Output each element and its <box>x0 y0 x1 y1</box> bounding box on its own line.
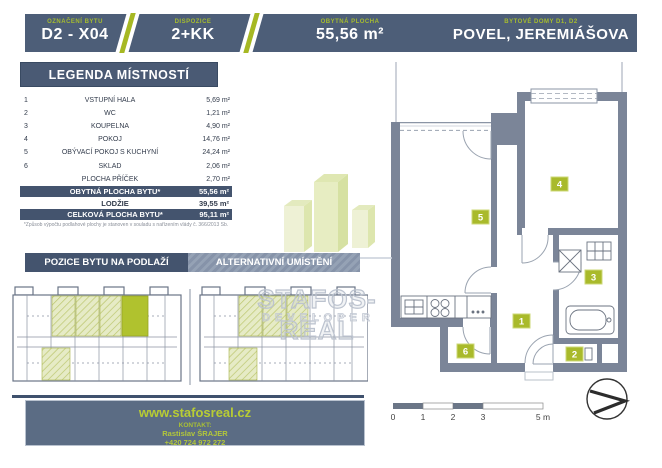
legend-title: LEGENDA MÍSTNOSTÍ <box>20 62 218 87</box>
summary-name: LODŽIE <box>20 199 180 208</box>
room-name: KOUPELNA <box>36 123 184 130</box>
header-cell-unit-id: OZNAČENÍ BYTU D2 - X04 <box>25 14 125 52</box>
summary-row-living-area: OBYTNÁ PLOCHA BYTU* 55,56 m² <box>20 186 232 197</box>
room-name: WC <box>36 110 184 117</box>
room-number: 5 <box>20 149 36 156</box>
svg-text:3: 3 <box>591 273 596 284</box>
header-cell-disposition: DISPOZICE 2+KK <box>138 14 248 52</box>
floor-position-miniplan <box>12 281 368 393</box>
room-area: 24,24 m² <box>184 149 232 156</box>
washing-machine-icon <box>559 250 581 272</box>
room-name: PLOCHA PŘÍČEK <box>36 176 184 183</box>
legend-table: 1 VSTUPNÍ HALA 5,69 m² 2 WC 1,21 m² 3 KO… <box>20 94 232 186</box>
room-area: 5,69 m² <box>184 97 232 104</box>
svg-text:3: 3 <box>481 412 486 422</box>
room-number: 2 <box>20 110 36 117</box>
bathtub-icon <box>566 306 614 334</box>
legend-row: PLOCHA PŘÍČEK 2,70 m² <box>20 173 232 186</box>
room-number: 6 <box>20 163 36 170</box>
svg-text:2: 2 <box>451 412 456 422</box>
svg-text:6: 6 <box>463 347 468 358</box>
summary-area: 55,56 m² <box>180 187 232 196</box>
room-area: 14,76 m² <box>184 136 232 143</box>
room-area: 2,70 m² <box>184 176 232 183</box>
svg-text:1: 1 <box>421 412 426 422</box>
svg-text:5 m: 5 m <box>536 412 550 422</box>
legend-summary: OBYTNÁ PLOCHA BYTU* 55,56 m² LODŽIE 39,5… <box>20 186 232 220</box>
summary-name: CELKOVÁ PLOCHA BYTU* <box>20 210 180 219</box>
legend-row: 4 POKOJ 14,76 m² <box>20 133 232 146</box>
legend-row: 5 OBÝVACÍ POKOJ S KUCHYNÍ 24,24 m² <box>20 146 232 159</box>
tab-alternative-location[interactable]: ALTERNATIVNÍ UMÍSTĚNÍ <box>188 253 360 272</box>
disposition-value: 2+KK <box>138 25 248 45</box>
header-cell-project: BYTOVÉ DOMY D1, D2 POVEL, JEREMIÁŠOVA <box>445 14 637 52</box>
legend-row: 3 KOUPELNA 4,90 m² <box>20 120 232 133</box>
website-link[interactable]: www.stafosreal.cz <box>26 401 364 420</box>
disposition-label: DISPOZICE <box>138 14 248 25</box>
legend-row: 1 VSTUPNÍ HALA 5,69 m² <box>20 94 232 107</box>
bath-sink-icon <box>587 242 611 260</box>
tab-floor-position[interactable]: POZICE BYTU NA PODLAŽÍ <box>25 253 188 272</box>
svg-text:0: 0 <box>391 412 396 422</box>
project-label: BYTOVÉ DOMY D1, D2 <box>445 14 637 25</box>
room-area: 4,90 m² <box>184 123 232 130</box>
svg-text:4: 4 <box>557 180 563 191</box>
contact-name: Rastislav ŠRAJER <box>26 429 364 438</box>
header-cell-living-area: OBYTNÁ PLOCHA 55,56 m² <box>255 14 445 52</box>
header-bar: OZNAČENÍ BYTU D2 - X04 DISPOZICE 2+KK OB… <box>25 14 637 52</box>
room-name: OBÝVACÍ POKOJ S KUCHYNÍ <box>36 149 184 156</box>
legend-row: 2 WC 1,21 m² <box>20 107 232 120</box>
legend-row: 6 SKLAD 2,06 m² <box>20 159 232 172</box>
current-unit-highlight <box>122 296 148 336</box>
unit-id-label: OZNAČENÍ BYTU <box>25 14 125 25</box>
project-value: POVEL, JEREMIÁŠOVA <box>445 25 637 45</box>
scale-bar: 0 1 2 3 5 m <box>391 403 550 422</box>
stafos-building-logo-watermark <box>268 160 398 268</box>
room-area: 2,06 m² <box>184 163 232 170</box>
section-divider <box>12 395 364 398</box>
footer-contact-box: www.stafosreal.cz KONTAKT: Rastislav ŠRA… <box>25 400 365 446</box>
kitchen-counter <box>401 296 491 318</box>
room-number: 4 <box>20 136 36 143</box>
svg-text:2: 2 <box>572 350 577 361</box>
summary-area: 95,11 m² <box>180 210 232 219</box>
room-name: SKLAD <box>36 163 184 170</box>
svg-text:1: 1 <box>519 317 525 328</box>
contact-phone: +420 724 972 272 <box>26 438 364 447</box>
contact-label: KONTAKT: <box>26 422 364 429</box>
summary-area: 39,55 m² <box>180 199 232 208</box>
room-number: 1 <box>20 97 36 104</box>
unit-id-value: D2 - X04 <box>25 25 125 45</box>
loggia-opening <box>400 122 491 131</box>
room-number: 3 <box>20 123 36 130</box>
room-name: VSTUPNÍ HALA <box>36 97 184 104</box>
room-name: POKOJ <box>36 136 184 143</box>
window <box>531 89 597 103</box>
living-area-value: 55,56 m² <box>255 25 445 45</box>
compass-north-icon <box>587 379 627 419</box>
summary-row-total-area: CELKOVÁ PLOCHA BYTU* 95,11 m² <box>20 209 232 220</box>
legend-footnote: *Způsob výpočtu podlahové plochy je stan… <box>20 222 232 228</box>
summary-name: OBYTNÁ PLOCHA BYTU* <box>20 187 180 196</box>
floor-plan: 5 4 1 6 2 3 0 1 2 3 5 m <box>385 52 662 432</box>
living-area-label: OBYTNÁ PLOCHA <box>255 14 445 25</box>
svg-text:5: 5 <box>478 213 484 224</box>
room-area: 1,21 m² <box>184 110 232 117</box>
summary-row-loggia: LODŽIE 39,55 m² <box>20 197 232 208</box>
